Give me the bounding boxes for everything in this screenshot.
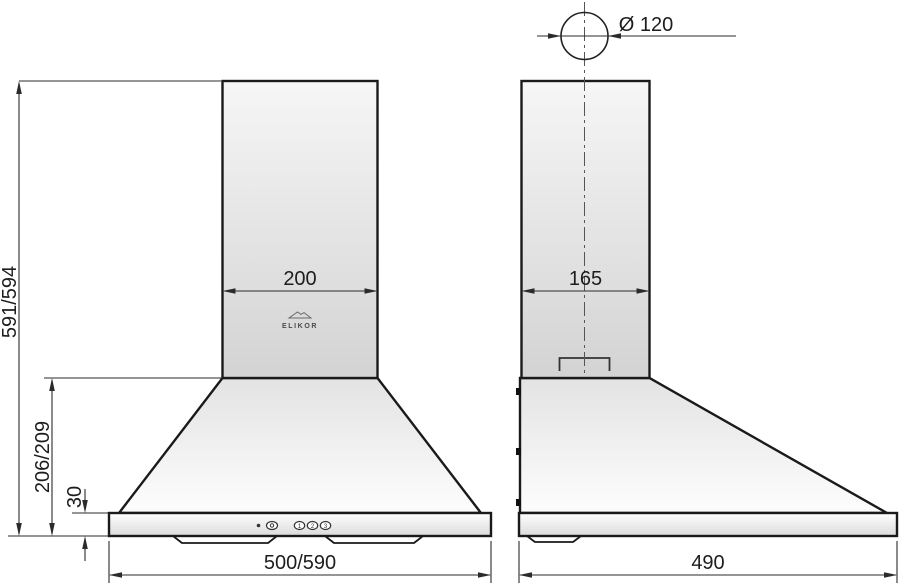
- hinge-mark-top: [516, 388, 521, 395]
- side-duct: [522, 81, 650, 378]
- cone-height-label: 206/209: [32, 421, 54, 493]
- light-button[interactable]: [267, 522, 278, 530]
- front-canopy: [119, 378, 481, 513]
- hood-dimension-drawing: ELIKOR 1 2 3 591/594: [0, 0, 900, 584]
- hinge-mark-middle: [516, 448, 521, 455]
- side-canopy: [520, 378, 887, 513]
- bottom-depth-label: 490: [691, 552, 724, 574]
- duct-depth-label: 165: [569, 268, 602, 290]
- total-height-label: 591/594: [0, 266, 21, 338]
- front-view: ELIKOR 1 2 3: [109, 81, 491, 543]
- logo-text: ELIKOR: [282, 323, 318, 330]
- dimension-outlet-diameter: Ø 120: [537, 14, 736, 39]
- base-height-label: 30: [64, 486, 86, 508]
- duct-width-label: 200: [283, 268, 316, 290]
- dimension-bottom-depth: 490: [519, 541, 897, 583]
- indicator-led: [257, 524, 261, 528]
- dimension-base-height: 30: [8, 486, 108, 561]
- front-duct: [223, 81, 378, 378]
- outlet-diameter-label: Ø 120: [619, 14, 673, 36]
- bottom-width-label: 500/590: [264, 552, 336, 574]
- hinge-mark-bottom: [516, 499, 521, 506]
- dimension-bottom-width: 500/590: [109, 541, 491, 583]
- side-base: [519, 513, 897, 536]
- drawing-canvas: ELIKOR 1 2 3 591/594: [0, 0, 900, 584]
